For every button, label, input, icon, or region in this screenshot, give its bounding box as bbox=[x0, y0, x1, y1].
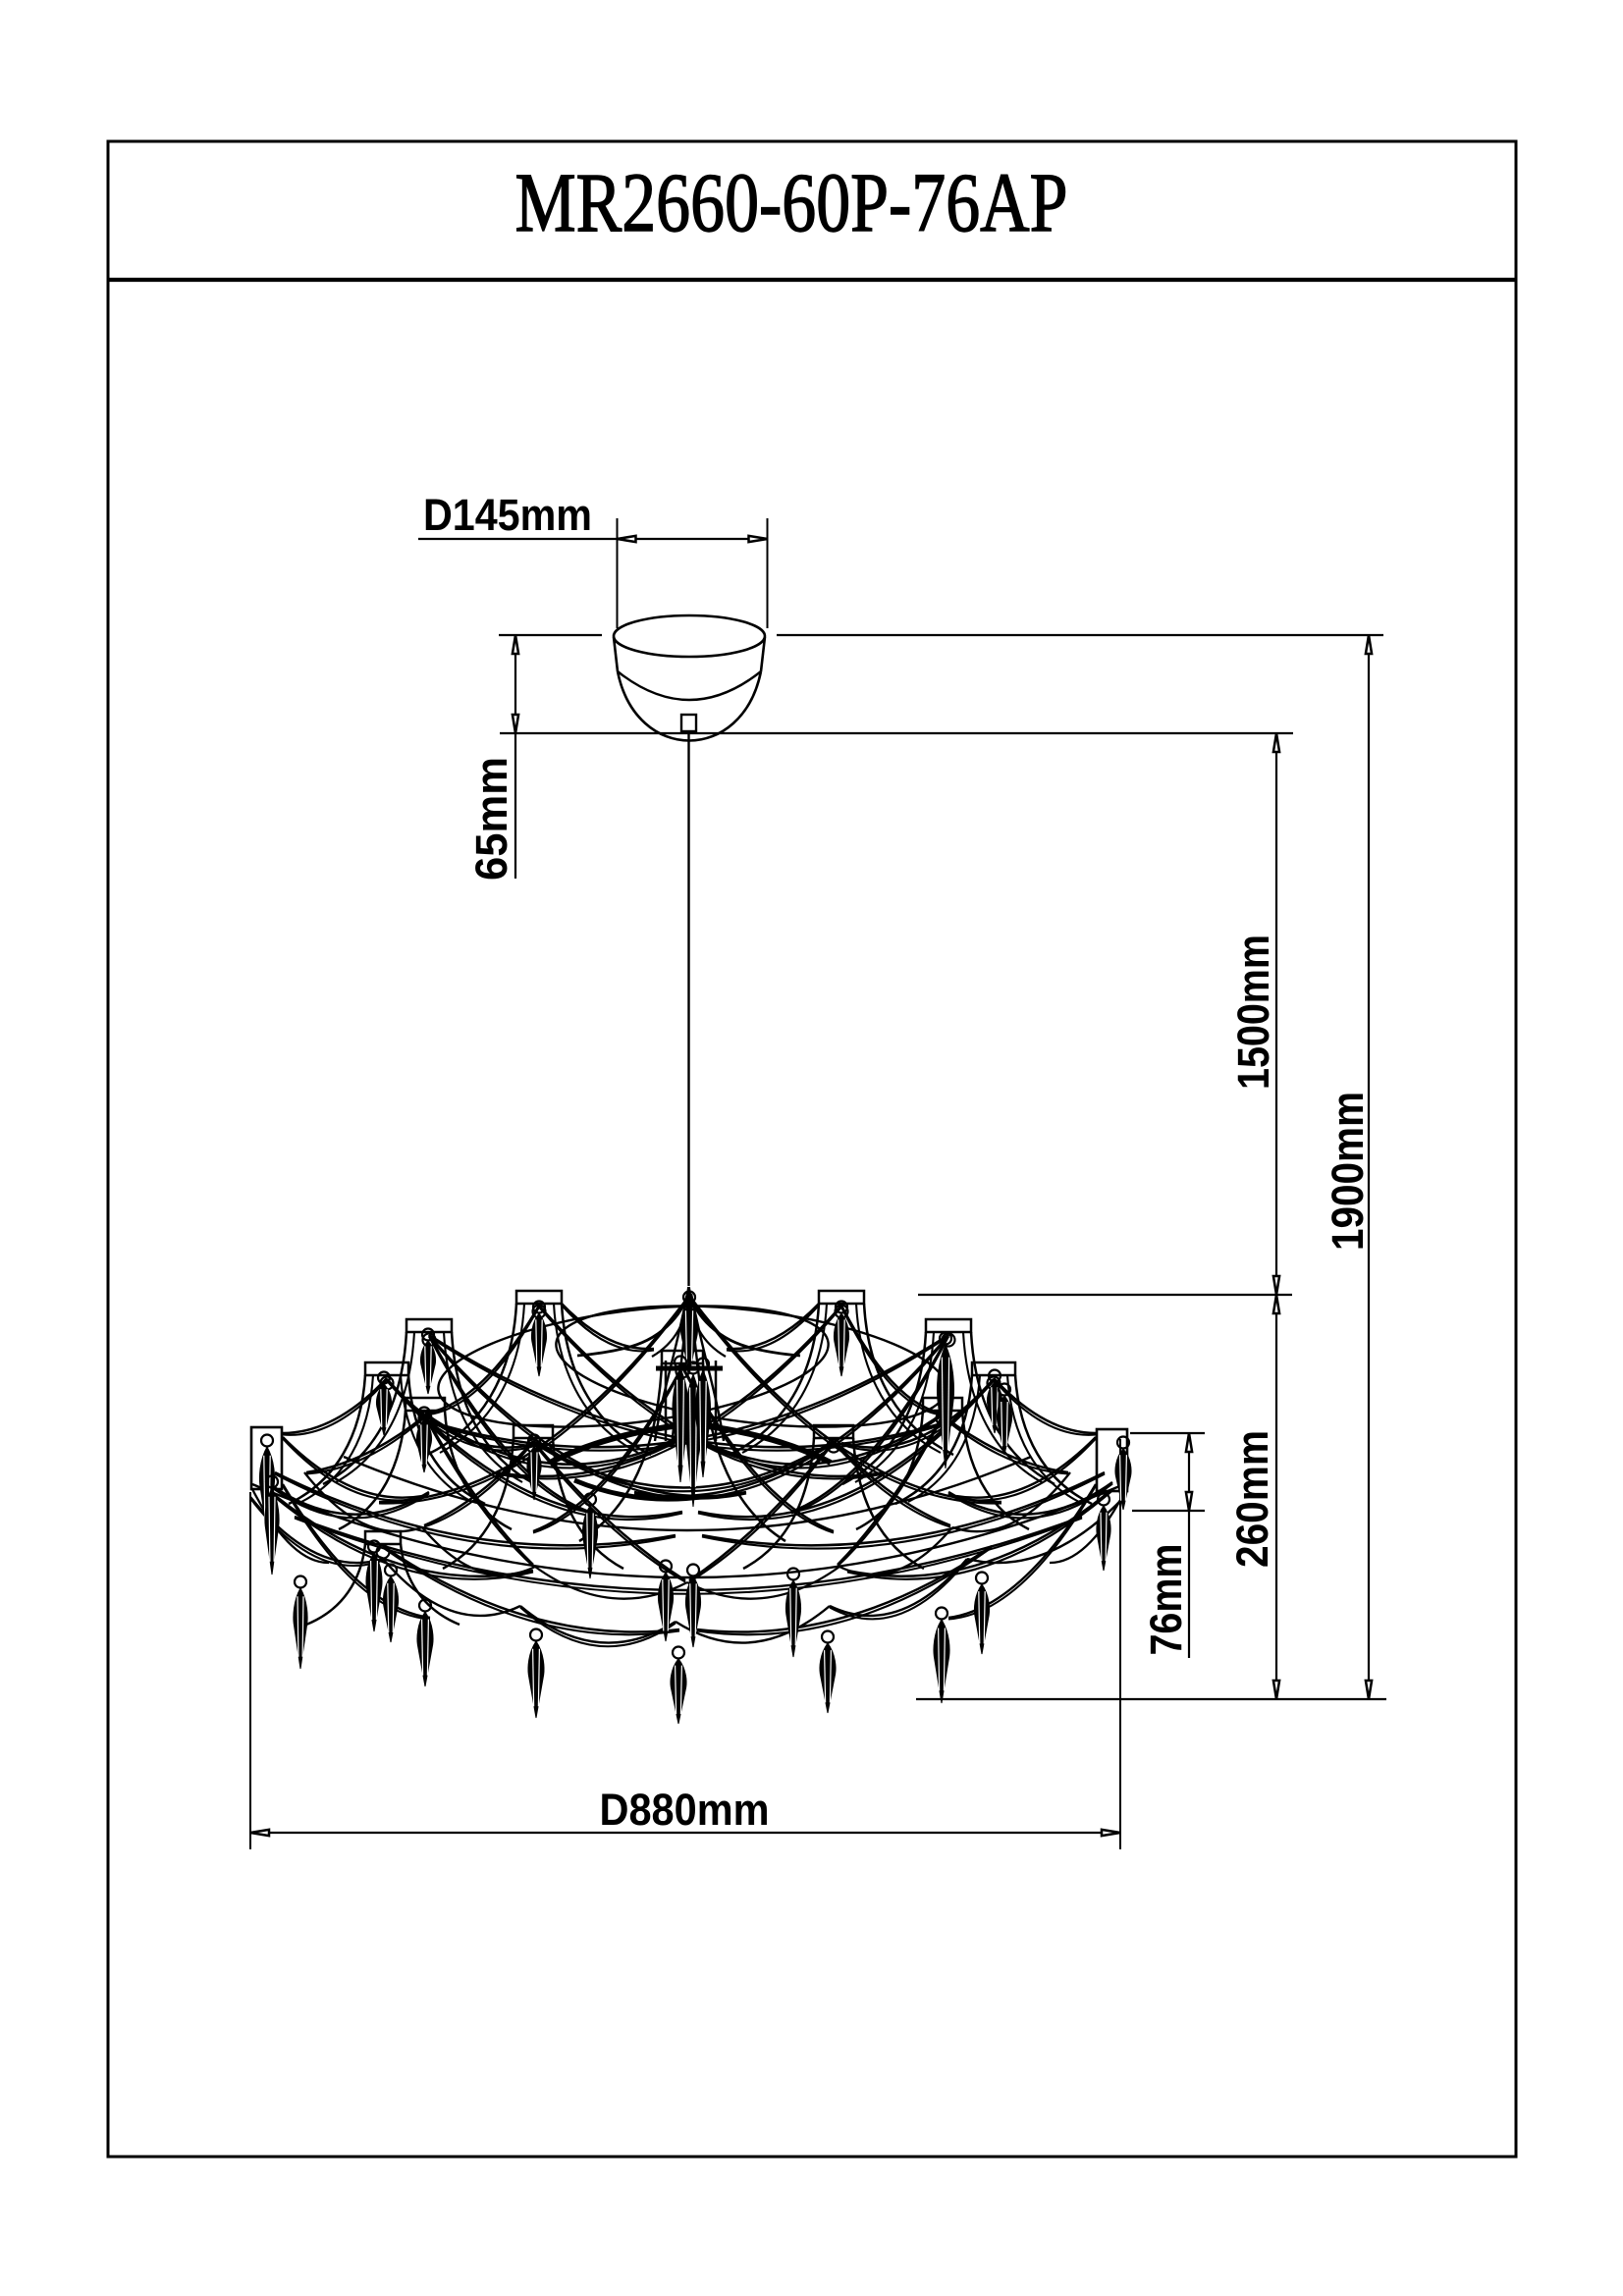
svg-text:1900mm: 1900mm bbox=[1323, 1092, 1373, 1251]
svg-text:65mm: 65mm bbox=[466, 757, 516, 881]
svg-text:1500mm: 1500mm bbox=[1228, 934, 1278, 1090]
svg-text:D880mm: D880mm bbox=[600, 1785, 770, 1835]
svg-text:260mm: 260mm bbox=[1227, 1430, 1277, 1568]
svg-text:76mm: 76mm bbox=[1141, 1544, 1191, 1656]
svg-text:D145mm: D145mm bbox=[423, 490, 592, 540]
svg-text:MR2660-60P-76AP: MR2660-60P-76AP bbox=[515, 155, 1068, 249]
